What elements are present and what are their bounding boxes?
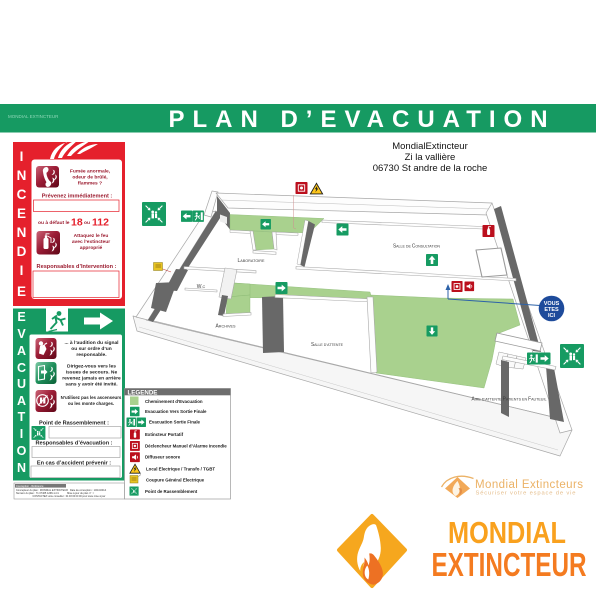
svg-text:06730 St andre de la roche: 06730 St andre de la roche <box>373 163 488 174</box>
svg-text:A: A <box>17 344 26 358</box>
svg-text:E: E <box>17 310 25 324</box>
svg-text:Déclencheur Manuel d’Alarme In: Déclencheur Manuel d’Alarme Incendie <box>145 443 227 448</box>
svg-text:issues de secours. Ne: issues de secours. Ne <box>66 370 118 376</box>
svg-text:18: 18 <box>71 217 83 229</box>
svg-text:T: T <box>18 410 26 424</box>
svg-text:avec l’extincteur: avec l’extincteur <box>72 239 110 245</box>
svg-text:Coupure Général Electrique: Coupure Général Electrique <box>146 477 205 482</box>
svg-text:Local Electrique / Transfo / T: Local Electrique / Transfo / TGBT <box>146 466 215 471</box>
svg-text:V: V <box>17 327 26 341</box>
svg-text:flammes ?: flammes ? <box>78 181 102 187</box>
svg-text:EXTINCTEUR: EXTINCTEUR <box>432 546 587 583</box>
svg-text:MondialExtincteur: MondialExtincteur <box>392 141 468 152</box>
svg-text:MONDIAL: MONDIAL <box>448 515 566 550</box>
svg-text:En cas d’accident prévenir :: En cas d’accident prévenir : <box>37 461 111 467</box>
svg-text:Point de Rassemblement: Point de Rassemblement <box>145 489 198 494</box>
svg-text:I: I <box>20 149 24 164</box>
svg-text:E: E <box>17 206 26 221</box>
svg-text:VOUS: VOUS <box>544 301 560 307</box>
svg-text:ou: ou <box>84 221 90 226</box>
svg-text:N: N <box>17 168 27 183</box>
svg-text:C: C <box>17 361 26 375</box>
svg-text:ou sur ordre d’un: ou sur ordre d’un <box>71 346 111 352</box>
svg-text:U: U <box>17 377 26 391</box>
svg-text:Sécuriser votre espace de vie: Sécuriser votre espace de vie <box>476 491 576 497</box>
svg-text:approprié: approprié <box>80 245 103 251</box>
svg-text:MONDIAL EXTINCTEUR: MONDIAL EXTINCTEUR <box>8 114 59 119</box>
svg-text:Prévenez immédiatement :: Prévenez immédiatement : <box>42 194 113 200</box>
svg-text:ETES: ETES <box>544 307 559 313</box>
svg-text:sans y avoir été invité.: sans y avoir été invité. <box>65 382 118 388</box>
svg-text:I: I <box>20 427 23 441</box>
svg-text:Responsables d’évacuation :: Responsables d’évacuation : <box>35 441 112 447</box>
svg-text:N’utilisez pas les ascenseurs: N’utilisez pas les ascenseurs <box>61 395 122 400</box>
svg-text:N: N <box>17 225 27 240</box>
svg-text:Fumée anormale,: Fumée anormale, <box>70 169 111 175</box>
svg-text:Evacuation Vers Sortie Finale: Evacuation Vers Sortie Finale <box>145 409 207 414</box>
svg-text:I: I <box>20 263 24 278</box>
svg-text:Point de Rassemblement :: Point de Rassemblement : <box>39 421 109 427</box>
svg-text:responsable.: responsable. <box>76 352 107 358</box>
svg-text:N: N <box>17 461 26 475</box>
svg-text:A: A <box>17 394 26 408</box>
svg-text:Extincteur Portatif: Extincteur Portatif <box>145 432 184 437</box>
svg-text:Conception - Référence: Conception - Référence <box>16 484 44 488</box>
svg-text:E: E <box>17 284 26 299</box>
svg-text:112: 112 <box>92 217 109 229</box>
svg-text:C: C <box>17 187 27 202</box>
svg-text:LEGENDE: LEGENDE <box>128 389 158 396</box>
svg-text:odeur de brûlé,: odeur de brûlé, <box>72 175 108 181</box>
svg-text:Diffuseur sonore: Diffuseur sonore <box>145 455 181 460</box>
svg-text:Responsables d’Intervention :: Responsables d’Intervention : <box>37 264 117 270</box>
svg-text:revenez jamais en arrière: revenez jamais en arrière <box>62 376 121 382</box>
svg-text:Cheminement d’Evacuation: Cheminement d’Evacuation <box>145 399 203 404</box>
svg-text:Mondial Extincteurs: Mondial Extincteurs <box>475 479 583 491</box>
svg-text:Zi la vallière: Zi la vallière <box>405 152 456 163</box>
svg-text:Attaquez le feu: Attaquez le feu <box>74 233 109 239</box>
svg-text:CONTACTEZ votre conseiller : 0: CONTACTEZ votre conseiller : 04 93 00 00… <box>33 495 106 498</box>
svg-text:Evacuation Sortie Finale: Evacuation Sortie Finale <box>149 420 201 425</box>
svg-text:O: O <box>17 444 27 458</box>
svg-text:ou à défaut le: ou à défaut le <box>38 220 70 226</box>
svg-text:Dirigez-vous vers les: Dirigez-vous vers les <box>67 364 116 370</box>
svg-text:ICI: ICI <box>548 313 556 319</box>
svg-text:D: D <box>17 244 27 259</box>
svg-text:PLAN D’EVACUATION: PLAN D’EVACUATION <box>168 106 555 133</box>
svg-text:ou les monte charges.: ou les monte charges. <box>68 401 114 406</box>
svg-text:... à l’audition du signal: ... à l’audition du signal <box>64 340 119 346</box>
